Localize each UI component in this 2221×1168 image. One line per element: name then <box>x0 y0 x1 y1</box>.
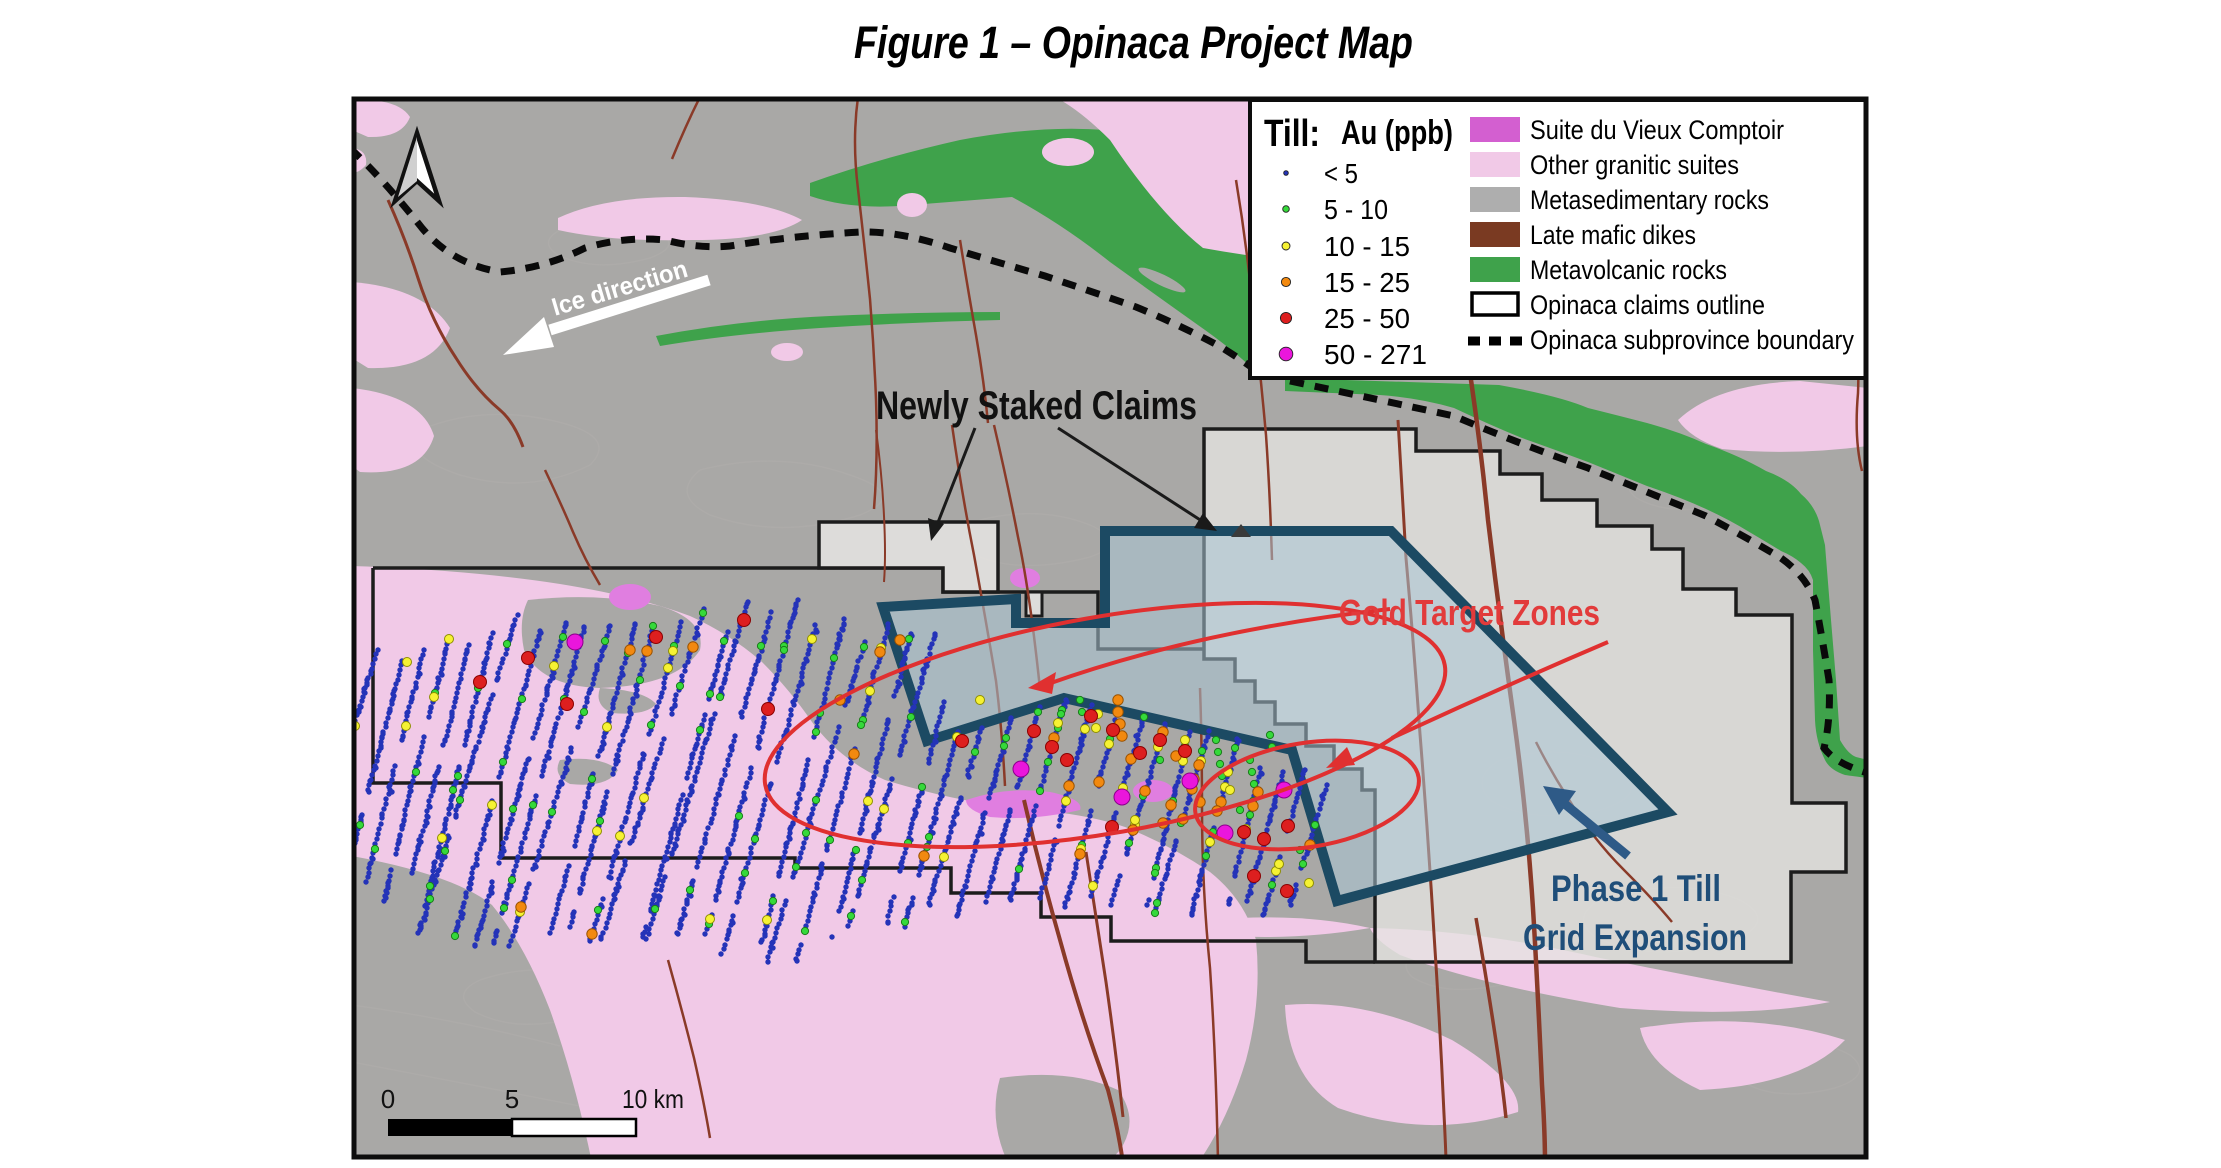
svg-text:Suite du Vieux Comptoir: Suite du Vieux Comptoir <box>1530 115 1784 145</box>
svg-text:Au (ppb): Au (ppb) <box>1341 114 1453 152</box>
svg-text:10 km: 10 km <box>622 1084 684 1114</box>
svg-text:5 - 10: 5 - 10 <box>1324 194 1388 225</box>
svg-text:Metasedimentary rocks: Metasedimentary rocks <box>1530 185 1769 215</box>
svg-text:Phase 1 Till: Phase 1 Till <box>1551 868 1721 909</box>
svg-text:15 - 25: 15 - 25 <box>1324 267 1410 298</box>
svg-text:Grid Expansion: Grid Expansion <box>1523 917 1747 958</box>
svg-text:10 - 15: 10 - 15 <box>1324 231 1410 262</box>
svg-text:< 5: < 5 <box>1324 158 1358 189</box>
svg-text:Opinaca subprovince boundary: Opinaca subprovince boundary <box>1530 325 1854 355</box>
svg-text:Till:: Till: <box>1264 113 1320 155</box>
svg-text:Opinaca claims outline: Opinaca claims outline <box>1530 290 1765 320</box>
svg-text:Other granitic suites: Other granitic suites <box>1530 150 1739 180</box>
svg-text:Late mafic dikes: Late mafic dikes <box>1530 220 1696 250</box>
svg-text:Figure 1 – Opinaca Project Map: Figure 1 – Opinaca Project Map <box>854 17 1413 68</box>
svg-text:Gold Target Zones: Gold Target Zones <box>1339 592 1600 633</box>
svg-text:25 - 50: 25 - 50 <box>1324 303 1410 334</box>
svg-text:Newly Staked Claims: Newly Staked Claims <box>876 384 1197 428</box>
svg-text:50 - 271: 50 - 271 <box>1324 339 1427 370</box>
svg-text:Metavolcanic rocks: Metavolcanic rocks <box>1530 255 1727 285</box>
svg-text:5: 5 <box>505 1084 519 1114</box>
svg-text:0: 0 <box>381 1084 395 1114</box>
